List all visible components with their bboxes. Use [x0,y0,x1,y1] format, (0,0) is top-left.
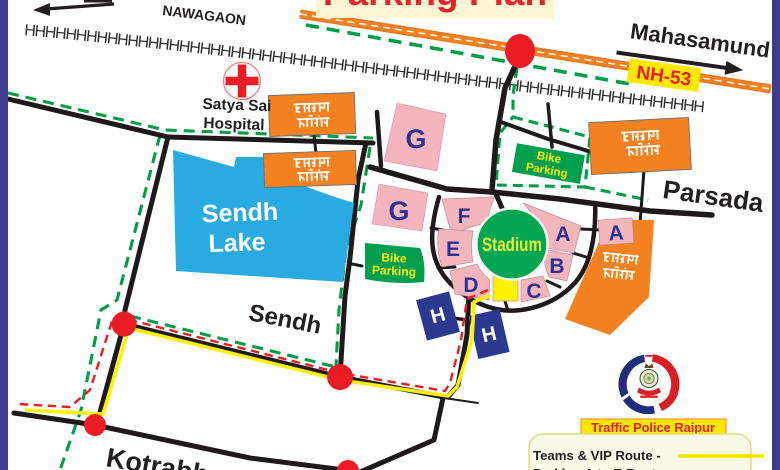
svg-text:D: D [463,274,478,297]
svg-text:Teams & VIP Route -: Teams & VIP Route - [533,448,661,463]
svg-text:F: F [458,205,471,228]
svg-text:G: G [388,196,409,226]
svg-text:E: E [446,238,460,261]
svg-text:Satya Sai: Satya Sai [202,96,271,115]
svg-text:Hospital: Hospital [203,115,265,134]
svg-text:Parking A to E Route: Parking A to E Route [533,466,663,470]
svg-text:A: A [555,223,570,246]
svg-text:Stadium: Stadium [482,235,542,256]
svg-text:Lake: Lake [208,228,266,258]
svg-text:B: B [549,255,564,278]
svg-text:Parking Plan: Parking Plan [323,0,547,13]
svg-text:A: A [608,221,625,245]
svg-text:G: G [405,124,426,154]
svg-text:Parking: Parking [372,263,417,279]
svg-text:Traffic Police Raipur: Traffic Police Raipur [591,420,715,435]
svg-text:Sendh: Sendh [201,198,278,229]
svg-text:C: C [526,280,541,303]
